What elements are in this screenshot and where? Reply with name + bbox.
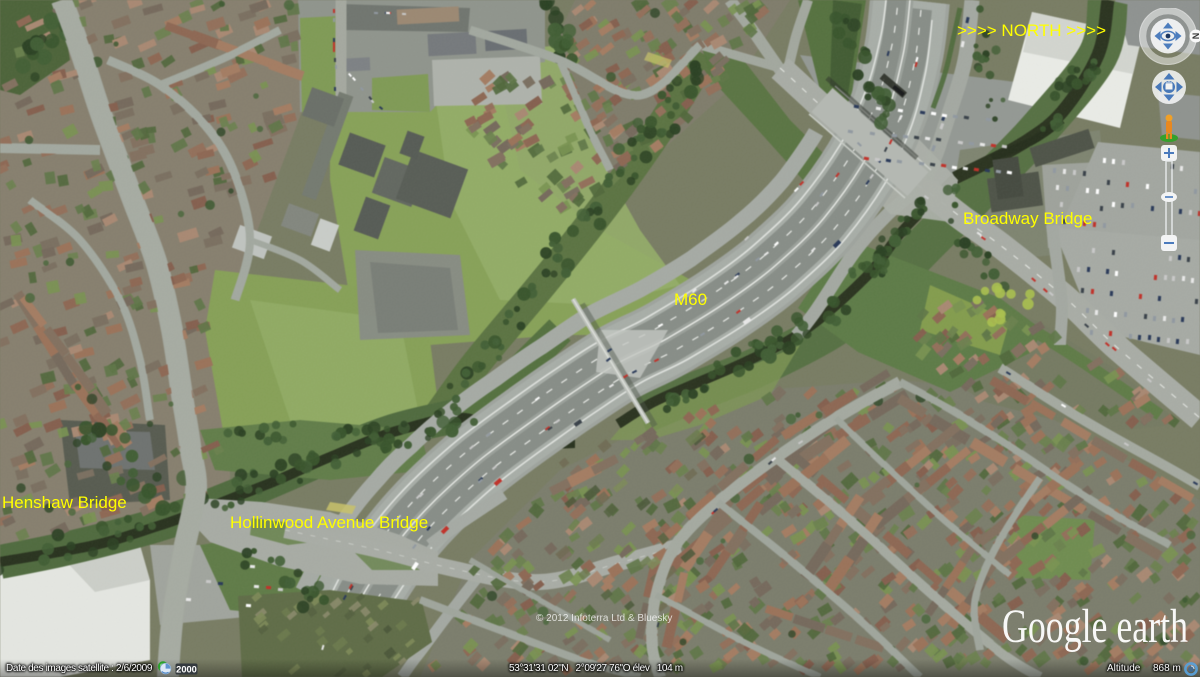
svg-text:N: N: [1191, 33, 1200, 40]
svg-text:2000: 2000: [176, 664, 197, 674]
svg-text:Google earth: Google earth: [1002, 600, 1188, 653]
